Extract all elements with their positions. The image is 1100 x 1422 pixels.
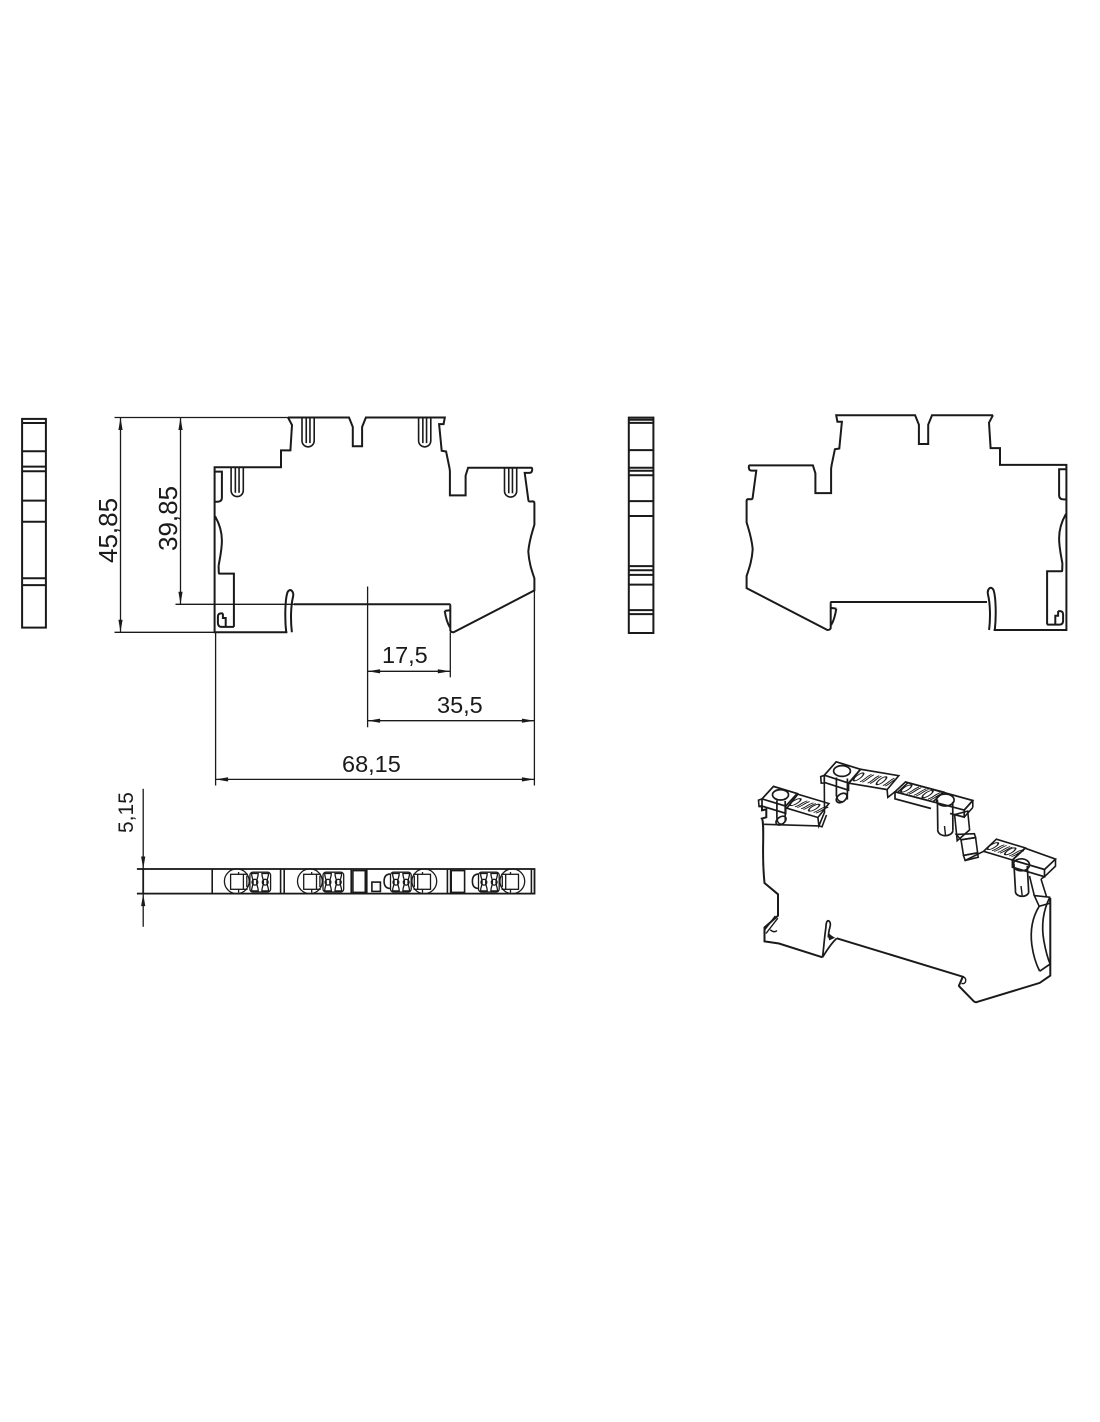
svg-text:45,85: 45,85 — [93, 498, 123, 563]
svg-text:35,5: 35,5 — [437, 692, 483, 718]
svg-text:17,5: 17,5 — [382, 642, 428, 668]
svg-text:68,15: 68,15 — [342, 751, 401, 777]
svg-text:5,15: 5,15 — [115, 792, 138, 833]
svg-text:39,85: 39,85 — [153, 486, 183, 551]
